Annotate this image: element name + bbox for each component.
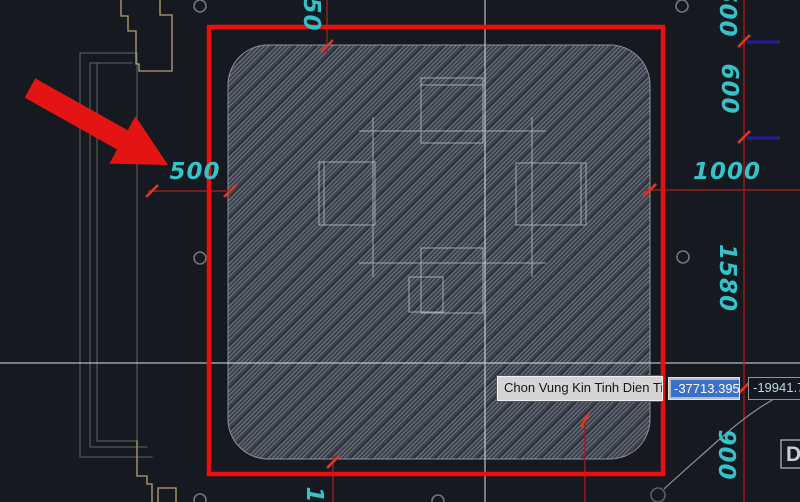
dynamic-input-prompt: Chon Vung Kin Tinh Dien Tich : (497, 376, 663, 401)
dynamic-input-value-secondary[interactable]: -19941.734 (748, 377, 800, 400)
grid-bubble-d-label: D (786, 443, 800, 467)
selected-value-text: -37713.3955 (671, 380, 740, 397)
dynamic-input-value-primary[interactable]: -37713.3955 (668, 377, 740, 400)
cad-canvas[interactable]: 500 1000 600 600 1580 900 150 150 Chon V… (0, 0, 800, 502)
drawing-viewport (0, 0, 800, 502)
